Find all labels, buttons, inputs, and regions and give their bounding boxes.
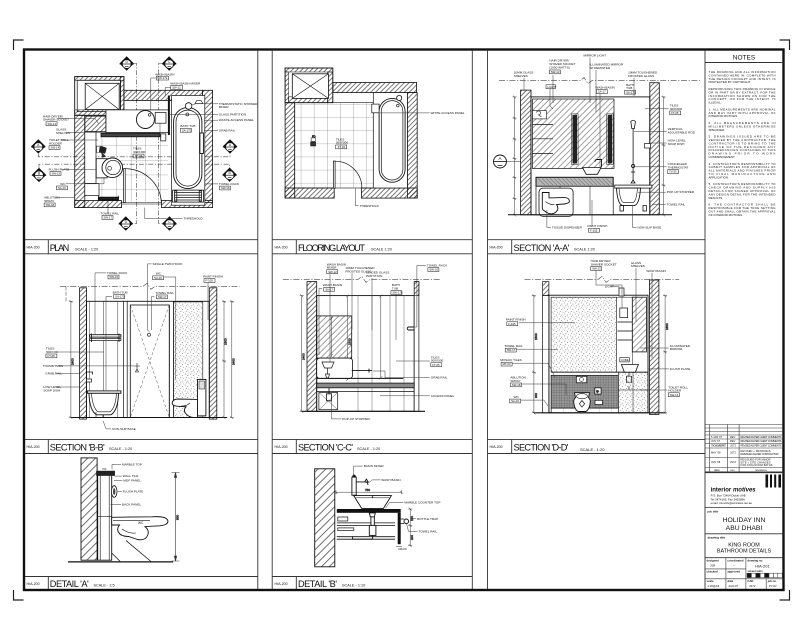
svg-text:MDF PANEL: MDF PANEL xyxy=(123,479,141,483)
svg-text:KING ROOM: KING ROOM xyxy=(728,542,760,548)
svg-text:GRAB RAIL: GRAB RAIL xyxy=(219,129,236,133)
svg-text:SW-18: SW-18 xyxy=(512,383,521,387)
svg-text:REVISED AS PER CLIENT COMMENTS: REVISED AS PER CLIENT COMMENTS xyxy=(741,439,782,443)
svg-text:PARTITION: PARTITION xyxy=(366,274,382,278)
svg-text:SCALE 1:20: SCALE 1:20 xyxy=(371,247,392,251)
svg-text:SECTION 'B-B': SECTION 'B-B' xyxy=(50,443,105,453)
svg-text:SW-17a: SW-17a xyxy=(157,76,167,80)
svg-text:ILLEGAL.: ILLEGAL. xyxy=(709,101,722,105)
svg-text:SCALE - 1:20: SCALE - 1:20 xyxy=(580,447,605,452)
svg-text:SECTION 'A-A': SECTION 'A-A' xyxy=(514,243,570,253)
svg-text:SOAP DISH: SOAP DISH xyxy=(43,388,60,392)
svg-text:JS72: JS72 xyxy=(730,443,736,447)
svg-text:F-105: F-105 xyxy=(508,322,516,326)
svg-text:SA-19: SA-19 xyxy=(511,399,519,403)
svg-text:SECTION 'D-D': SECTION 'D-D' xyxy=(514,443,569,453)
svg-text:HIA-200: HIA-200 xyxy=(275,582,288,586)
svg-text:SA-175: SA-175 xyxy=(626,90,636,94)
svg-text:5 JAN '07: 5 JAN '07 xyxy=(711,435,723,439)
svg-text:1800: 1800 xyxy=(665,323,669,330)
svg-text:SHELVES: SHELVES xyxy=(56,131,70,135)
svg-text:HIA-200: HIA-200 xyxy=(275,445,288,449)
svg-text:WASTE ACCESS PANEL: WASTE ACCESS PANEL xyxy=(219,118,254,122)
svg-text:MARBLE COUNTER TOP: MARBLE COUNTER TOP xyxy=(404,501,440,505)
svg-text:W/ DEMISTER: W/ DEMISTER xyxy=(590,66,611,70)
svg-text:GLASS PARTITION: GLASS PARTITION xyxy=(219,112,246,116)
svg-text:2400: 2400 xyxy=(231,358,235,365)
svg-text:HOLIDAY INN: HOLIDAY INN xyxy=(723,517,766,524)
svg-text:FT-04: FT-04 xyxy=(135,154,143,158)
svg-text:MT-03: MT-03 xyxy=(503,362,511,366)
svg-text:REVISED AS PER CLIENT COMMENTS: REVISED AS PER CLIENT COMMENTS xyxy=(741,443,782,447)
svg-text:FT-05: FT-05 xyxy=(432,363,440,367)
svg-text:SW-18: SW-18 xyxy=(46,203,55,207)
svg-text:PLAN: PLAN xyxy=(50,243,70,253)
svg-text:F-105: F-105 xyxy=(590,228,598,232)
svg-text:revisions: revisions xyxy=(755,468,767,472)
svg-text:WASH BASIN: WASH BASIN xyxy=(646,269,665,273)
svg-text:FD: FD xyxy=(312,134,316,138)
svg-text:FOR KING ROOM BATHS: FOR KING ROOM BATHS xyxy=(741,463,773,467)
svg-text:A: A xyxy=(498,156,501,161)
svg-text:approved: approved xyxy=(727,569,740,573)
svg-text:HIA-200: HIA-200 xyxy=(27,246,40,250)
svg-text:JS72: JS72 xyxy=(730,460,736,464)
svg-text:DETAIL 'B': DETAIL 'B' xyxy=(298,579,337,589)
svg-text:FLUSH PLATE: FLUSH PLATE xyxy=(670,367,691,371)
svg-text:SW-17: SW-17 xyxy=(507,348,516,352)
svg-text:SW-14: SW-14 xyxy=(51,146,60,150)
svg-text:1800: 1800 xyxy=(224,338,228,345)
svg-text:SECTION 'C-C': SECTION 'C-C' xyxy=(298,443,353,453)
svg-text:2400: 2400 xyxy=(71,358,75,365)
svg-text:BOTTLE TRAP: BOTTLE TRAP xyxy=(417,517,438,521)
svg-text:SA-175: SA-175 xyxy=(182,128,192,132)
svg-text:screen axis: screen axis xyxy=(747,569,763,573)
svg-text:BASIN MIXER: BASIN MIXER xyxy=(364,464,385,468)
svg-text:MARBLE TOP: MARBLE TOP xyxy=(122,462,142,466)
svg-text:THRESHOLD: THRESHOLD xyxy=(360,204,380,208)
svg-text:700: 700 xyxy=(102,467,107,471)
svg-text:SCALE - 1:20: SCALE - 1:20 xyxy=(357,447,380,451)
svg-text:MIRROR LIGHT: MIRROR LIGHT xyxy=(584,54,607,58)
svg-text:APPLICATION.: APPLICATION. xyxy=(709,175,730,179)
svg-text:(1000 WATTS): (1000 WATTS) xyxy=(549,66,569,70)
svg-text:TOWEL RAIL: TOWEL RAIL xyxy=(667,203,686,207)
svg-text:750: 750 xyxy=(365,488,370,492)
svg-text:SW-16: SW-16 xyxy=(221,186,230,190)
svg-text:MIXER: MIXER xyxy=(219,105,230,109)
svg-text:--: -- xyxy=(733,564,735,568)
svg-text:SW-16: SW-16 xyxy=(429,268,438,272)
svg-text:REISSUED AS PER CONTRACTOR: REISSUED AS PER CONTRACTOR xyxy=(741,452,779,456)
svg-text:SA-19: SA-19 xyxy=(58,186,66,190)
svg-text:coordinated: coordinated xyxy=(727,559,743,563)
svg-text:SHELVES: SHELVES xyxy=(514,74,528,78)
svg-text:drawing no.: drawing no. xyxy=(747,559,763,563)
svg-text:HIA-200: HIA-200 xyxy=(490,445,503,449)
svg-text:SCALE - 1:20: SCALE - 1:20 xyxy=(109,447,132,451)
svg-text:POP-UP STOPPER: POP-UP STOPPER xyxy=(342,417,370,421)
svg-text:WASH BASIN: WASH BASIN xyxy=(381,478,400,482)
svg-text:ABU DHABI: ABU DHABI xyxy=(726,525,763,532)
svg-text:JUN '08: JUN '08 xyxy=(711,460,721,464)
svg-text:CAD: CAD xyxy=(747,579,753,583)
svg-text:SOAP DISH: SOAP DISH xyxy=(668,142,685,146)
svg-text:WHITE ACCESS PANEL: WHITE ACCESS PANEL xyxy=(431,111,465,115)
svg-text:FLOORING LAYOUT: FLOORING LAYOUT xyxy=(298,243,365,253)
svg-text:SA-17: SA-17 xyxy=(325,287,333,291)
svg-text:job title: job title xyxy=(707,509,719,513)
svg-text:SW-17: SW-17 xyxy=(104,216,113,220)
svg-text:scale: scale xyxy=(707,579,714,583)
svg-text:FLUSH PLATE: FLUSH PLATE xyxy=(123,490,144,494)
svg-text:PROTECTED BY COPYRIGHT.: PROTECTED BY COPYRIGHT. xyxy=(709,80,752,84)
svg-text:NOTES: NOTES xyxy=(733,55,756,62)
svg-text:TISSUE DISPENSER: TISSUE DISPENSER xyxy=(552,226,583,230)
svg-text:FT-05: FT-05 xyxy=(47,354,55,358)
svg-text:ACCESS PANEL: ACCESS PANEL xyxy=(431,394,455,398)
svg-text:SW-12: SW-12 xyxy=(172,86,181,90)
svg-text:F-105: F-105 xyxy=(206,279,214,283)
svg-text:designed: designed xyxy=(707,559,720,563)
svg-text:date: date xyxy=(727,579,733,583)
svg-text:CUBE: CUBE xyxy=(621,358,629,362)
svg-text:JUN '07: JUN '07 xyxy=(711,439,721,443)
svg-text:1:20@A3: 1:20@A3 xyxy=(708,584,720,588)
svg-text:SW-13: SW-13 xyxy=(48,122,57,126)
svg-text:RESULTS.: RESULTS. xyxy=(709,196,724,200)
svg-text:REVISED AS PER CLIENT COMMENTS: REVISED AS PER CLIENT COMMENTS xyxy=(741,435,782,439)
svg-text:2400: 2400 xyxy=(301,353,305,360)
svg-text:SW-15: SW-15 xyxy=(52,172,61,176)
svg-text:SW-17: SW-17 xyxy=(158,295,167,299)
svg-text:OF INTERIOR MOTIVES.: OF INTERIOR MOTIVES. xyxy=(709,213,744,217)
svg-text:MAY '08: MAY '08 xyxy=(711,450,721,454)
svg-text:BATHROOM DETAILS: BATHROOM DETAILS xyxy=(717,549,772,555)
svg-text:FT-05: FT-05 xyxy=(671,111,679,115)
svg-text:JS72: JS72 xyxy=(749,584,756,588)
svg-text:WALL TILE: WALL TILE xyxy=(123,474,139,478)
svg-text:SW-16: SW-16 xyxy=(110,275,119,279)
svg-text:HIA-200: HIA-200 xyxy=(27,445,40,449)
svg-text:INTERIOR MOTIVES.: INTERIOR MOTIVES. xyxy=(709,114,739,118)
svg-text:SW-13: SW-13 xyxy=(592,267,601,271)
svg-text:SPECIFIED.: SPECIFIED. xyxy=(709,128,726,132)
svg-text:rev: rev xyxy=(731,468,736,472)
svg-text:drawing title: drawing title xyxy=(708,536,726,540)
svg-text:interior motives: interior motives xyxy=(711,488,757,494)
svg-text:JS72: JS72 xyxy=(730,450,736,454)
svg-text:SW-17b: SW-17b xyxy=(392,291,402,295)
svg-text:THRESHOLD: THRESHOLD xyxy=(184,217,204,221)
svg-text:SW-14: SW-14 xyxy=(670,393,679,397)
svg-text:ADJUSTABLE ROD: ADJUSTABLE ROD xyxy=(668,131,696,135)
svg-text:SCALE 1:20: SCALE 1:20 xyxy=(574,247,595,251)
svg-text:SW-12: SW-12 xyxy=(328,270,337,274)
svg-text:COMMENCEMENT.: COMMENCEMENT. xyxy=(709,155,736,159)
svg-text:FROSTED GLASS: FROSTED GLASS xyxy=(628,74,654,78)
svg-text:SA-19: SA-19 xyxy=(154,276,162,280)
svg-text:SCALE - 1:20: SCALE - 1:20 xyxy=(75,247,98,251)
svg-text:FT-04: FT-04 xyxy=(338,145,346,149)
svg-text:200: 200 xyxy=(410,535,414,540)
svg-text:HIA-200: HIA-200 xyxy=(490,246,503,250)
svg-text:REV: REV xyxy=(730,435,736,439)
svg-text:HIA-200: HIA-200 xyxy=(27,582,40,586)
svg-text:BACK PANEL: BACK PANEL xyxy=(122,502,141,506)
svg-text:800: 800 xyxy=(176,515,180,520)
svg-text:email: intmotiv@emirates.net.: email: intmotiv@emirates.net.ae xyxy=(711,501,753,505)
svg-text:SCALE - 1:5: SCALE - 1:5 xyxy=(94,584,115,588)
svg-text:WC: WC xyxy=(138,521,144,525)
svg-text:PY-02: PY-02 xyxy=(769,584,777,588)
svg-text:900: 900 xyxy=(534,393,538,398)
svg-text:7 NOVEMBER '07: 7 NOVEMBER '07 xyxy=(711,443,727,447)
svg-text:TV-53: TV-53 xyxy=(669,170,677,174)
svg-text:AUG'07: AUG'07 xyxy=(728,584,738,588)
svg-text:SHELVES: SHELVES xyxy=(631,264,645,268)
svg-text:GRAB RAIL: GRAB RAIL xyxy=(431,376,448,380)
svg-text:SA-175: SA-175 xyxy=(115,295,125,299)
svg-text:MIRROR: MIRROR xyxy=(670,347,683,351)
svg-text:TOWEL RAIL: TOWEL RAIL xyxy=(419,529,438,533)
svg-text:1500: 1500 xyxy=(534,333,538,340)
svg-text:JSR: JSR xyxy=(710,564,715,568)
svg-text:date: date xyxy=(714,468,720,472)
svg-text:REV: REV xyxy=(730,439,736,443)
svg-text:SINGLE TWIN HOOK: SINGLE TWIN HOOK xyxy=(153,262,184,266)
svg-text:SCALE - 1:10: SCALE - 1:10 xyxy=(342,584,365,588)
svg-text:POP-UP STOPPER: POP-UP STOPPER xyxy=(667,190,695,194)
svg-text:checked: checked xyxy=(707,569,718,573)
svg-text:SA-17: SA-17 xyxy=(598,90,606,94)
svg-text:HIA-201: HIA-201 xyxy=(755,564,770,569)
svg-text:LIGHT: LIGHT xyxy=(548,85,557,89)
svg-text:HIA-200: HIA-200 xyxy=(275,246,288,250)
svg-text:job no.: job no. xyxy=(767,579,777,583)
svg-text:DRAIN: DRAIN xyxy=(399,547,407,551)
svg-text:NON-SLIP BASE: NON-SLIP BASE xyxy=(638,226,662,230)
svg-text:NON-SLIP BASE: NON-SLIP BASE xyxy=(112,427,136,431)
svg-text:SW-13: SW-13 xyxy=(551,70,560,74)
svg-text:DETAIL 'A': DETAIL 'A' xyxy=(50,579,89,589)
